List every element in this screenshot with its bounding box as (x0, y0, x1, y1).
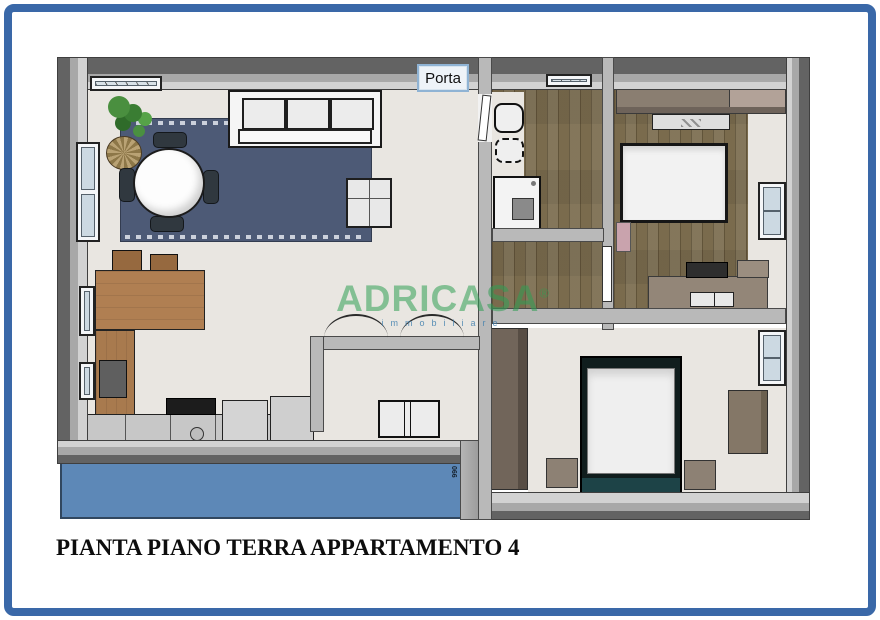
wall-entry-top (310, 336, 480, 350)
wicker-basket (106, 136, 142, 170)
window-top-bath (546, 74, 592, 87)
window-glass (81, 147, 95, 190)
dining-table (133, 148, 205, 218)
toilet (494, 103, 524, 133)
bedroom2-bed (580, 356, 682, 494)
window-glass (763, 187, 781, 211)
sofa (228, 90, 382, 148)
window-glass (84, 367, 90, 395)
terrace: 066 (60, 462, 462, 519)
dresser-pillows (686, 262, 728, 278)
oven (99, 360, 127, 398)
window-top-living (90, 76, 162, 91)
wardrobe-edge (617, 107, 785, 113)
plan-caption: PIANTA PIANO TERRA APPARTAMENTO 4 (56, 535, 520, 561)
wall-bedroom-divider (492, 308, 786, 324)
window-left-small (79, 362, 95, 400)
wall-entry-left (310, 336, 324, 432)
dresser-drawers (690, 292, 734, 307)
dresser-box (737, 260, 769, 278)
door-leaf (602, 246, 612, 302)
entry-cabinet (378, 400, 440, 438)
window-glass (551, 79, 587, 82)
dining-chair-top (153, 132, 187, 148)
wall-exterior-bottom-left (57, 440, 480, 464)
cooktop (166, 398, 216, 415)
dining-chair-right (203, 170, 219, 204)
sink (190, 427, 204, 441)
window-right-bedroom2 (758, 330, 786, 386)
window-glass (84, 291, 90, 331)
bedroom2-wardrobe (490, 328, 528, 490)
bidet (495, 138, 524, 163)
window-glass (763, 358, 781, 381)
bedroom1-bed (620, 143, 728, 223)
ottoman (346, 178, 392, 228)
bedroom2-nightstand (684, 460, 716, 490)
wall-exterior-right (786, 57, 810, 520)
door-tooltip: Porta (417, 64, 469, 92)
window-glass (763, 335, 781, 358)
plant (108, 96, 130, 118)
bedroom1-bench (652, 114, 730, 130)
bed-footboard (582, 478, 680, 492)
floorplan-page: 066 (0, 0, 880, 620)
wall-exterior-left (57, 57, 88, 462)
kitchen-appliance (222, 400, 268, 442)
sofa-front-edge (238, 129, 372, 144)
bedroom2-nightstand (546, 458, 578, 488)
window-right-bedroom1 (758, 182, 786, 240)
wall-bath-bottom (492, 228, 604, 242)
terrace-dimension-label: 066 (450, 466, 457, 478)
kitchen-appliance (270, 396, 314, 442)
window-glass (763, 211, 781, 235)
shower-fixture (512, 198, 534, 220)
sofa-cushion (242, 98, 286, 130)
window-left-small (79, 286, 95, 336)
dining-chair-bottom (150, 216, 184, 232)
kitchen-stool (112, 250, 142, 272)
wardrobe-edge (518, 329, 527, 489)
bedroom2-chest (728, 390, 768, 454)
shower (493, 176, 541, 234)
kitchen-peninsula (95, 270, 205, 330)
door-tooltip-label: Porta (425, 70, 461, 87)
sofa-cushion (330, 98, 374, 130)
sofa-cushion (286, 98, 330, 130)
wall-exterior-bottom-right (478, 492, 810, 520)
bed-duvet (587, 368, 675, 474)
window-glass (95, 81, 157, 86)
rug-fringe-bottom (125, 235, 367, 239)
corridor-floor (492, 242, 602, 310)
window-left-large (76, 142, 100, 242)
shower-drain (531, 181, 536, 186)
window-glass (81, 194, 95, 237)
bench-mark (681, 119, 701, 127)
bedroom1-nightstand-pink (616, 222, 631, 252)
